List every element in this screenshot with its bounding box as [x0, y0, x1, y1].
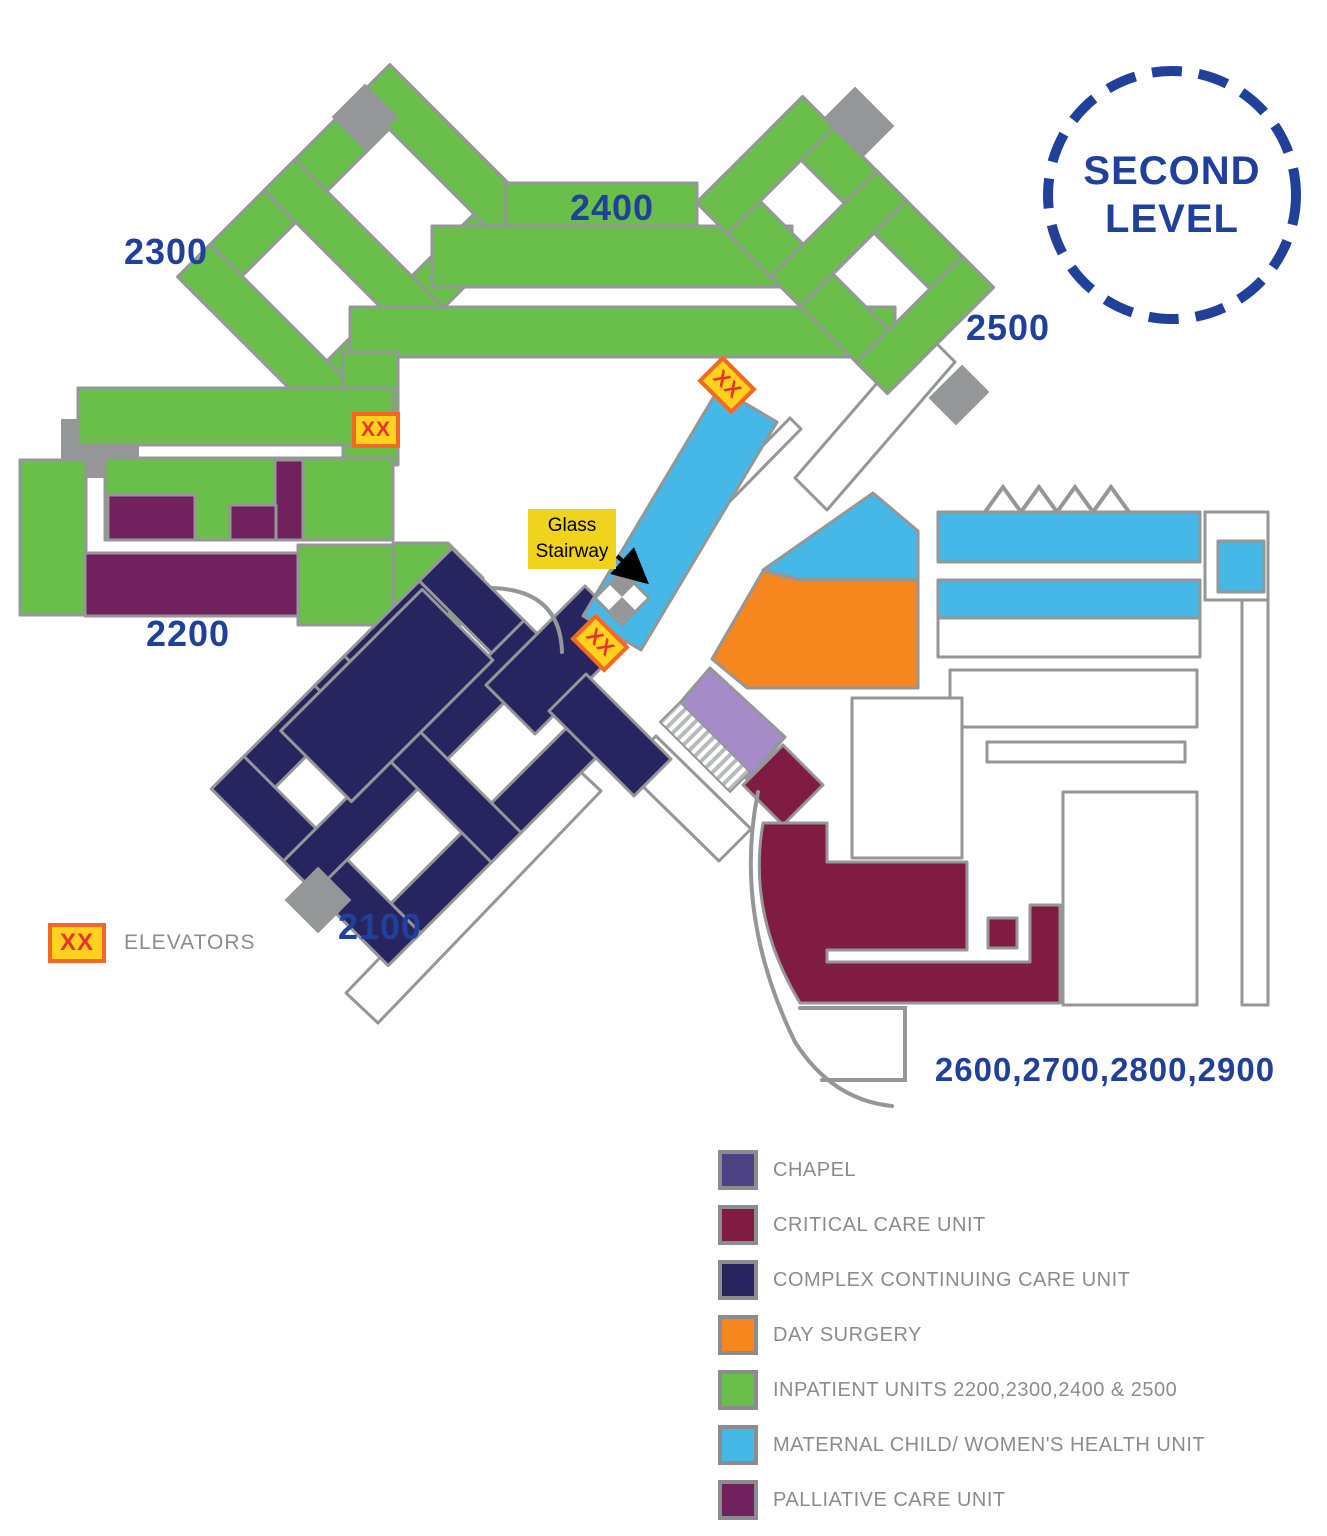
legend-row-day-surgery: DAY SURGERY: [718, 1315, 1205, 1355]
legend-label-palliative: PALLIATIVE CARE UNIT: [773, 1489, 1006, 1512]
legend-row-complex-care: COMPLEX CONTINUING CARE UNIT: [718, 1260, 1205, 1300]
legend-row-palliative: PALLIATIVE CARE UNIT: [718, 1480, 1205, 1520]
legend-label-critical-care: CRITICAL CARE UNIT: [773, 1214, 986, 1237]
label-wing-2300: 2300: [124, 231, 208, 273]
legend-label-inpatient: INPATIENT UNITS 2200,2300,2400 & 2500: [773, 1379, 1177, 1402]
level-title-line2: LEVEL: [1105, 195, 1239, 243]
legend-swatch-complex-care: [718, 1260, 758, 1300]
legend-row-inpatient: INPATIENT UNITS 2200,2300,2400 & 2500: [718, 1370, 1205, 1410]
legend-label-maternal: MATERNAL CHILD/ WOMEN'S HEALTH UNIT: [773, 1434, 1205, 1457]
level-title-line1: SECOND: [1083, 147, 1260, 195]
maternal-center-block: [763, 493, 918, 579]
legend-row-chapel: CHAPEL: [718, 1150, 1205, 1190]
level-title: SECOND LEVEL: [1043, 66, 1301, 324]
east-band-2: [950, 670, 1197, 727]
maternal-east-bar-1: [938, 512, 1200, 562]
elevator-marker-2200: XX: [352, 412, 400, 448]
legend-swatch-inpatient: [718, 1370, 758, 1410]
day-surgery-region: [712, 571, 918, 688]
label-wing-2200: 2200: [146, 613, 230, 655]
legend-swatch-palliative: [718, 1480, 758, 1520]
legend-label-chapel: CHAPEL: [773, 1159, 856, 1182]
level-badge: SECOND LEVEL: [1043, 66, 1301, 324]
label-wing-2100: 2100: [338, 906, 422, 948]
maternal-east-bar-2: [938, 580, 1200, 618]
legend-row-critical-care: CRITICAL CARE UNIT: [718, 1205, 1205, 1245]
legend-swatch-critical-care: [718, 1205, 758, 1245]
far-east-strip: [1242, 600, 1268, 1005]
glass-stairway-line2: Stairway: [536, 539, 609, 565]
glass-stairway-label: Glass Stairway: [528, 509, 616, 569]
label-wing-2600-2900: 2600,2700,2800,2900: [935, 1051, 1275, 1089]
legend-label-complex-care: COMPLEX CONTINUING CARE UNIT: [773, 1269, 1130, 1292]
east-block: [1063, 792, 1197, 1005]
floor-plan-page: 2300 2400 2500 2200 2100 2600,2700,2800,…: [0, 0, 1327, 1536]
east-band-1: [938, 618, 1200, 657]
east-band-3: [987, 742, 1185, 762]
map-legend: CHAPEL CRITICAL CARE UNIT COMPLEX CONTIN…: [718, 1150, 1205, 1535]
center-east-block: [852, 698, 962, 858]
label-wing-2500: 2500: [966, 307, 1050, 349]
elevators-key: XX ELEVATORS: [48, 923, 256, 963]
maternal-east-square: [1218, 541, 1264, 592]
glass-stairway-line1: Glass: [548, 513, 597, 539]
sawtooth-roof: [985, 487, 1129, 512]
label-wing-2400: 2400: [570, 187, 654, 229]
legend-swatch-maternal: [718, 1425, 758, 1465]
legend-swatch-chapel: [718, 1150, 758, 1190]
legend-swatch-day-surgery: [718, 1315, 758, 1355]
maternal-child-regions: [583, 388, 1264, 650]
legend-row-maternal: MATERNAL CHILD/ WOMEN'S HEALTH UNIT: [718, 1425, 1205, 1465]
elevators-key-label: ELEVATORS: [124, 931, 256, 955]
legend-label-day-surgery: DAY SURGERY: [773, 1324, 922, 1347]
elevators-key-symbol: XX: [48, 923, 106, 963]
